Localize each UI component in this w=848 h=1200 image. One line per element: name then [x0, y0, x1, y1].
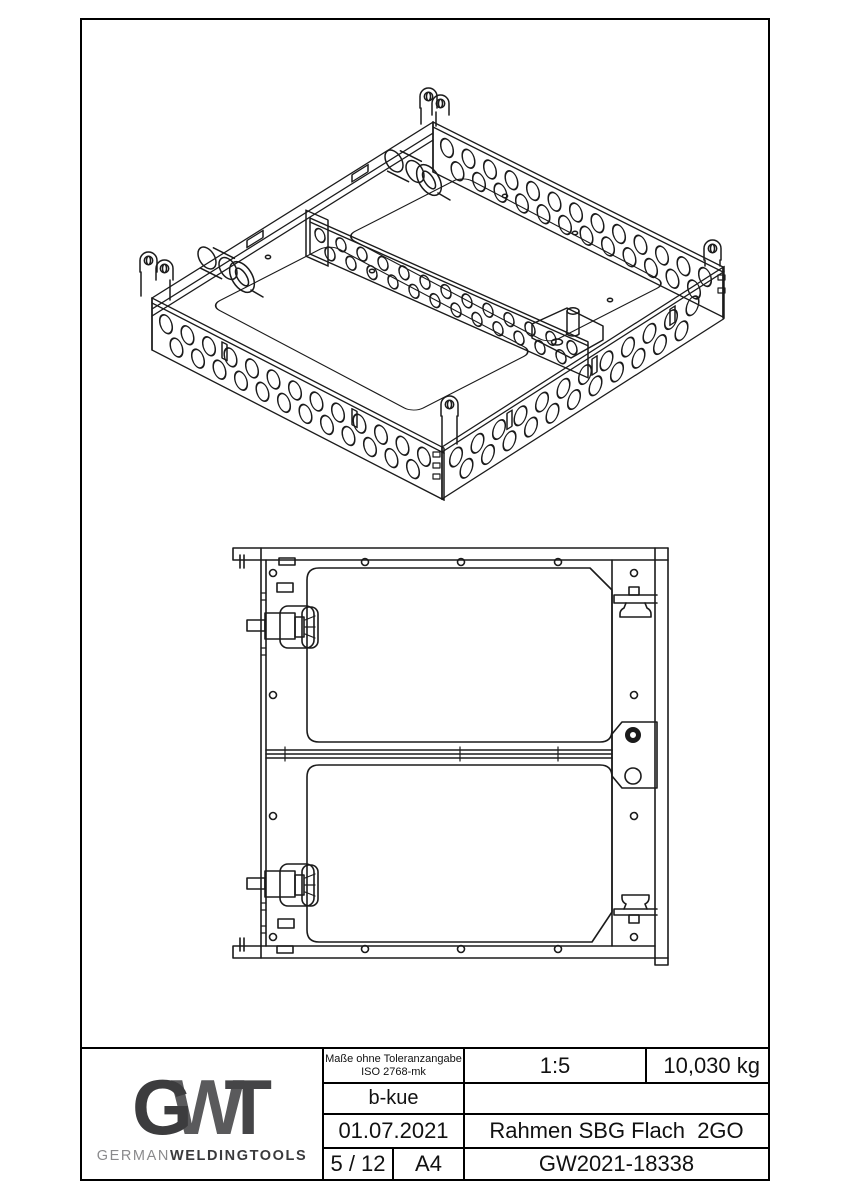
- logo-letter-t: T: [224, 1072, 272, 1142]
- sheet-number: 5 / 12: [322, 1147, 392, 1179]
- company-logo: G W T GERMANWELDINGTOOLS: [82, 1049, 322, 1179]
- gwt-logo: G W T: [132, 1072, 272, 1142]
- scale-value: 1:5: [463, 1049, 645, 1082]
- drawing-number: GW2021-18338: [463, 1147, 768, 1179]
- date-value: 01.07.2021: [322, 1113, 463, 1147]
- empty-cell: [463, 1082, 768, 1113]
- paper-format: A4: [392, 1147, 463, 1179]
- tolerance-note: Maße ohne Toleranzangabe ISO 2768-mk: [322, 1049, 463, 1082]
- title-block: G W T GERMANWELDINGTOOLS Maße ohne Toler…: [82, 1047, 768, 1179]
- author-value: b-kue: [322, 1082, 463, 1113]
- logo-letter-g: G: [132, 1072, 193, 1142]
- part-name: Rahmen SBG Flach 2GO: [463, 1113, 768, 1147]
- weight-value: 10,030 kg: [645, 1049, 768, 1082]
